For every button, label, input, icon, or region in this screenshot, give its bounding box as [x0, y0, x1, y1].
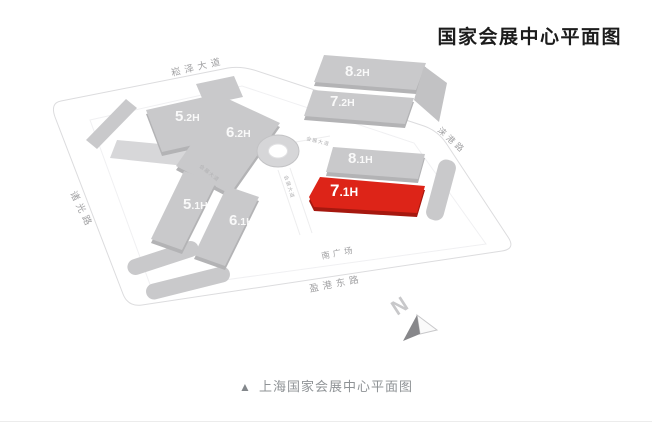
hall-number: 5: [183, 196, 191, 213]
hall-number: 6: [229, 212, 237, 229]
hall-suffix: .1H: [339, 185, 358, 199]
hall-number: 5: [175, 108, 183, 125]
hall-suffix: .2H: [338, 97, 354, 109]
compass-north-label: N: [387, 293, 412, 321]
hall-number: 7: [330, 181, 339, 200]
floorplan-map: 5.2H 6.2H 8.2H 7.2H 8.1H 7.1H 5.1H 6.1H …: [0, 0, 652, 422]
hall-number: 6: [226, 124, 234, 141]
hall-suffix: .2H: [353, 67, 369, 79]
hall-number: 8: [348, 150, 356, 167]
hall-suffix: .2H: [234, 128, 250, 140]
hall-number: 7: [330, 93, 338, 110]
caption-text: 上海国家会展中心平面图: [259, 379, 413, 394]
hall-suffix: .1H: [237, 216, 253, 228]
triangle-marker-icon: ▲: [239, 380, 252, 394]
hall-suffix: .1H: [356, 154, 372, 166]
compass: N: [387, 293, 437, 341]
image-caption: ▲上海国家会展中心平面图: [0, 376, 652, 395]
hall-suffix: .2H: [183, 112, 199, 124]
central-hub-core: [269, 144, 288, 158]
hall-suffix: .1H: [191, 200, 207, 212]
compass-needle-outline: [417, 315, 437, 334]
hall-number: 8: [345, 63, 353, 80]
compass-needle-icon: [403, 315, 420, 341]
floorplan-svg: 5.2H 6.2H 8.2H 7.2H 8.1H 7.1H 5.1H 6.1H …: [0, 0, 652, 422]
page: 国家会展中心平面图: [0, 0, 652, 422]
